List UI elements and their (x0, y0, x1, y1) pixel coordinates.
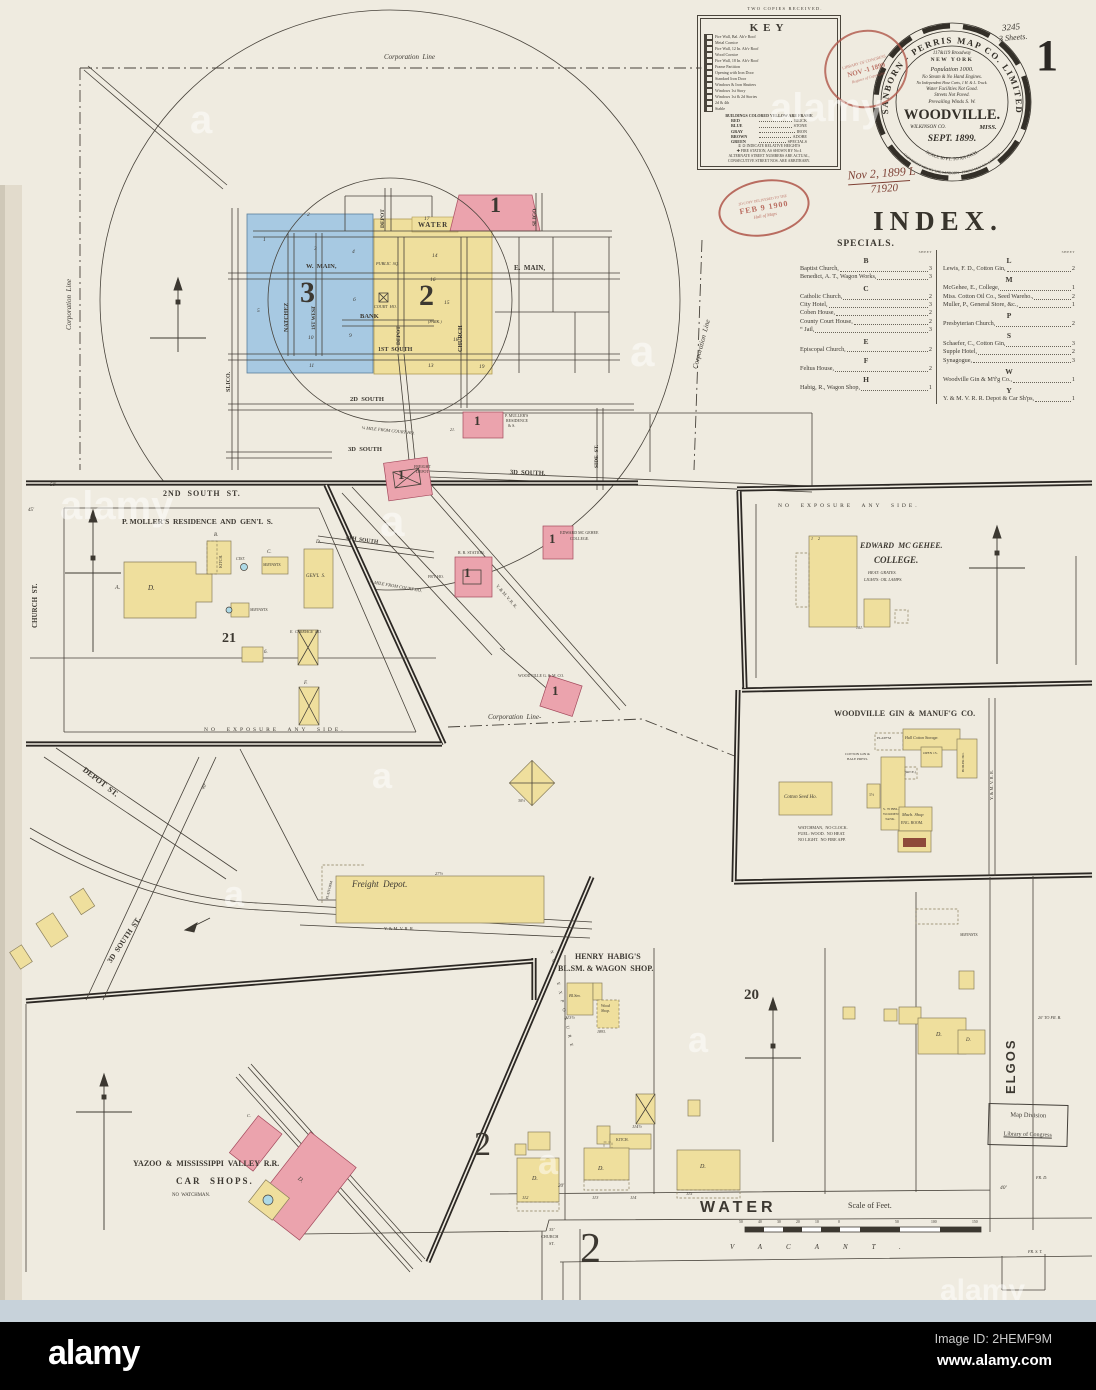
map-note: COLLEGE. (570, 537, 589, 541)
map-annotation-layer: Corporation LineCorporation LineCorporat… (0, 0, 1096, 1302)
seal-streets: Streets Not Paved. (934, 93, 969, 98)
lot-number: 113½ (565, 1016, 575, 1021)
block-number: 3 (300, 278, 315, 308)
building-label: CIST. (236, 557, 245, 561)
street-label: 3D SOUTH ST. (106, 916, 142, 964)
index-entry-cell: 2 (929, 293, 932, 301)
alamy-logo: alamy (48, 1334, 139, 1373)
image-id-label: Image ID: 2HEMF9M (935, 1332, 1052, 1346)
block-number: 10 (308, 336, 314, 342)
index-entry: Coben House,2 (800, 309, 932, 317)
building-label: E. CARRIAGE HO. (290, 631, 322, 635)
index-sheet-label: SHEET (943, 250, 1075, 254)
seal-town: WOODVILLE. (904, 107, 1000, 123)
block-number: 2 (419, 281, 434, 311)
index-entry-cell: Habig, R., Wagon Shop, (800, 384, 860, 392)
building-label: Mach. Shop (902, 813, 924, 818)
index-entry-cell (829, 301, 928, 308)
index-entry: Baptist Church,3 (800, 265, 932, 273)
index-entry-cell (978, 348, 1071, 355)
stamp-line: Map Division (989, 1111, 1067, 1120)
building-label: OPEN 1S. (923, 752, 938, 756)
index-entry-cell: 2 (929, 346, 932, 354)
inset-number: 1 (549, 532, 556, 545)
block-number: 13 (428, 364, 434, 370)
index-entry-cell: 3 (929, 265, 932, 273)
index-letter-header: M (943, 275, 1075, 284)
map-note: PUBLIC SQ. (376, 262, 399, 266)
index-entry-cell: Baptist Church, (800, 265, 839, 273)
block-number: 18 (453, 338, 459, 344)
scale-tick: 40 (758, 1221, 762, 1225)
building-label: SERVANTS. (960, 934, 978, 938)
index-entry-cell (973, 357, 1071, 364)
sheet-number: 1 (1036, 30, 1058, 81)
lot-number: 114 (630, 1196, 636, 1201)
photo-edge-strip (0, 1300, 1096, 1322)
index-entry-cell: Woodville Gin & M'f'g Co., (943, 376, 1012, 384)
key-title: KEY (704, 22, 834, 34)
index-entry-cell: 3 (1072, 340, 1075, 348)
map-note: 21. (450, 428, 455, 432)
key-item: Stable (704, 106, 834, 112)
block-number: 20 (744, 988, 759, 1003)
seal-state: MISS. (978, 124, 997, 131)
seal-address: 117&119 Broadway (933, 51, 972, 56)
index-entry-cell (835, 365, 928, 372)
index-entry-cell: 1 (1072, 284, 1075, 292)
index-entry: Episcopal Church,2 (800, 346, 932, 354)
index-entry-cell: City Hotel, (800, 301, 828, 309)
index-entry-cell (861, 384, 928, 391)
key-item-label: Windows & Iron Shutters (715, 82, 756, 88)
map-note: FR. D. (1036, 1176, 1047, 1180)
dimension: 40' (201, 783, 209, 791)
building-label: GEN'L S. (306, 575, 325, 580)
index-letter-header: L (943, 256, 1075, 265)
index-entry-cell: Episcopal Church, (800, 346, 846, 354)
index-letter-header: W (943, 367, 1075, 376)
map-note: NO EXPOSURE ANY SIDE. (778, 504, 920, 510)
building-label: WOODEN (883, 813, 899, 817)
key-item-label: Windows 1st & 2d Stories (715, 94, 757, 100)
block-number: 19 (479, 365, 485, 371)
street-label: DEPOT (381, 209, 387, 228)
scale-tick: 50 (895, 1221, 899, 1225)
index-entry-cell (843, 293, 928, 300)
building-label: B. (214, 533, 218, 538)
index-entry-cell (1035, 395, 1071, 402)
map-note: WATCHMAN, NO CLOCK. (798, 826, 848, 830)
corporation-line-label: Corporation Line (692, 319, 712, 370)
index-letter-header: E (800, 337, 932, 346)
index-letter-header: B (800, 256, 932, 265)
block-number: 1 (490, 194, 501, 216)
map-note: R. R. STATION. (458, 551, 485, 555)
dimension: 45' (28, 508, 34, 513)
block-number: 9 (349, 334, 352, 340)
section-title: HENRY HABIG'S (575, 953, 641, 961)
street-label: BANK (360, 314, 379, 321)
building-label: 6. (264, 650, 268, 655)
dimension: 50' (50, 483, 56, 488)
railroad-label: Y. & M. V. R. R. (495, 584, 518, 610)
block-number: 4 (352, 250, 355, 256)
index-entry-cell: 2 (929, 309, 932, 317)
index-columns: SHEETBBaptist Church,3Benedict, A. T., W… (800, 250, 1076, 404)
map-note: NO LIGHT. NO FIRE APP. (798, 838, 846, 842)
block-number: 17 (424, 217, 430, 223)
street-label: 1ST SOUTH (378, 347, 412, 353)
index-entry-cell: 3 (929, 326, 932, 334)
block-number: 16 (430, 278, 436, 284)
index-letter-header: Y (943, 386, 1075, 395)
index-entry: Supple Hotel,2 (943, 348, 1075, 356)
index-entry: City Hotel,3 (800, 301, 932, 309)
index-entry-cell (1000, 284, 1071, 291)
index-entry-cell: 2 (1072, 348, 1075, 356)
street-label: CHURCH ST. (32, 584, 39, 628)
index-entry: Habig, R., Wagon Shop,1 (800, 384, 932, 392)
index-column-right: SHEETLLewis, F. D., Cotton Gin,2MMcGehee… (936, 250, 1075, 404)
map-note: HEAT: GRATES. (868, 571, 897, 575)
key-color-cell (759, 139, 786, 143)
building-label: Freight Depot. (352, 880, 407, 889)
railroad-label: Y. & M. V. R. R. (384, 927, 414, 932)
dimension: 27½ (435, 872, 443, 877)
building-label: 1 (811, 537, 813, 541)
index-entry: Miss. Cotton Oil Co., Seed Wareho.,2 (943, 293, 1075, 301)
building-label: F. (304, 681, 308, 686)
map-note: (PARK.) (428, 320, 442, 324)
seal-winds: Prevailing Winds S. W. (927, 99, 975, 105)
map-note: FUEL: WOOD. NO HEAT. (798, 832, 845, 836)
scale-tick: 150 (972, 1221, 978, 1225)
block-number: 6 (353, 298, 356, 304)
index-entry: Y. & M. V. R. R. Depot & Car Sh'ps,1 (943, 395, 1075, 403)
index-entry-cell (840, 265, 928, 272)
block-number: 21 (222, 632, 236, 646)
index-entry-cell: 2 (1072, 320, 1075, 328)
key-color-cell (759, 123, 792, 127)
index-title: INDEX. (800, 206, 1076, 237)
index-entry-cell: Catholic Church, (800, 293, 842, 301)
building-label: Bl.Sm. (569, 994, 581, 999)
scale-tick: 0 (838, 1221, 840, 1225)
street-label: CHURCH (541, 1235, 558, 1239)
building-label: ENG. ROOM. (901, 822, 923, 826)
block-number: 5 (257, 309, 260, 315)
key-color-cell (759, 134, 791, 138)
street-label: 2D SOUTH (350, 397, 384, 404)
index-entry-cell: 1 (929, 384, 932, 392)
map-note: FR'T HO. (428, 575, 444, 579)
index-entry-cell (1007, 265, 1071, 272)
index-entry-cell (1034, 293, 1070, 300)
index-entry: “ Jail,3 (800, 326, 932, 334)
map-note: WOODVILLE G. & M. CO. (518, 674, 564, 678)
key-note: CONSECUTIVE STREET NOS. ARE ARBITRARY. (704, 159, 834, 164)
inset-number: 1 (474, 414, 481, 427)
lot-number: 113 (592, 1196, 598, 1201)
key-color-cell (759, 129, 795, 133)
block-number: 1 (263, 238, 266, 244)
seal-hose: No Independent Hose Carts, 1 H. & L. Tru… (916, 81, 988, 86)
block-number: 3 (314, 247, 317, 253)
building-label: PLATF'M (877, 737, 891, 741)
street-label: WATER (418, 222, 448, 229)
dimension: 30½ (518, 799, 525, 803)
index-entry-cell (854, 318, 928, 325)
seal-date: SEPT. 1899. (928, 134, 976, 144)
seal-water: Water Facilities Not Good. (926, 87, 978, 92)
street-label: 2ND SOUTH ST. (163, 490, 241, 498)
index-entry-cell: Supple Hotel, (943, 348, 977, 356)
corporation-line-label: Corporation Line (384, 54, 435, 61)
index-entry: Feltus House,2 (800, 365, 932, 373)
scale-tick: 20 (796, 1221, 800, 1225)
index-entry: Schaefer, C., Cotton Gin,3 (943, 340, 1075, 348)
key-item-label: Standard Iron Door (715, 76, 746, 82)
building-label: Hull Cotton Storage. (905, 736, 938, 740)
street-label: 4TH SOUTH (345, 536, 378, 546)
alamy-url: www.alamy.com (935, 1352, 1052, 1369)
scale-tick: 10 (815, 1221, 819, 1225)
corporation-line-label: Corporation Line- (488, 714, 541, 721)
section-title: YAZOO & MISSISSIPPI VALLEY R.R. (133, 1160, 279, 1168)
map-note: & S. (508, 424, 515, 428)
map-note: FR. S. T. (1028, 1250, 1042, 1254)
index-entry-cell (1013, 376, 1071, 383)
index-entry-cell: 2 (929, 318, 932, 326)
key-notes: ① ② INDICATE RELATIVE HEIGHTS✚ FIRE STAT… (704, 144, 834, 164)
block-number: 2 (580, 1228, 601, 1270)
index-entry-cell: Lewis, F. D., Cotton Gin, (943, 265, 1006, 273)
key-item-label: Wood Cornice (715, 52, 738, 58)
seal-population: Population 1000. (930, 66, 974, 73)
section-title: COLLEGE. (874, 556, 918, 565)
map-note: EDWARD MC GEHEE (560, 531, 598, 535)
key-item-label: Opening with Iron Door (715, 70, 754, 76)
key-color-cell (759, 118, 792, 122)
index-entry-cell (847, 346, 928, 353)
index-entry: Muller, P., General Store, &c.,1 (943, 301, 1075, 309)
index-entry-cell (996, 320, 1071, 327)
index-entry: County Court House,2 (800, 318, 932, 326)
key-item-label: Windows 1st Story (715, 88, 746, 94)
scale-title: Scale of Feet. (848, 1202, 892, 1210)
scale-tick: 100 (931, 1221, 937, 1225)
building-label: D. (966, 1038, 971, 1043)
inset-number: 1 (464, 566, 471, 579)
building-label: COTTON GIN & (845, 753, 870, 757)
index-entry: McGehee, E., College,1 (943, 284, 1075, 292)
lot-number: 112 (522, 1196, 528, 1201)
key-item-label: 2d & 4th (715, 100, 729, 106)
index-entry-cell: 1 (1072, 376, 1075, 384)
building-label: C. (267, 550, 272, 555)
building-label: D. (700, 1164, 706, 1170)
seal-scale: SCALE 50 FT. TO AN INCH. (925, 149, 979, 161)
block-number: 14 (432, 254, 438, 260)
building-label: SERVANTS. (263, 564, 281, 568)
building-label: D. (532, 1176, 538, 1182)
building-label: D. (296, 1176, 304, 1184)
received-note: TWO COPIES RECEIVED. (710, 6, 860, 11)
index-entry-cell: 1 (1072, 395, 1075, 403)
street-label: DEPOT (397, 326, 403, 345)
building-label: 101. (856, 626, 863, 630)
building-label: Cotton Seed Ho. (784, 795, 817, 800)
street-label: 3D SOUTH (348, 447, 382, 454)
index-entry-cell: 2 (929, 365, 932, 373)
railroad-label: Y. & M. V. R. R. (990, 770, 995, 800)
building-label: C. (247, 1114, 251, 1119)
building-label: PLATFORM (326, 881, 334, 900)
index-entry-cell (877, 273, 928, 280)
corporation-line-label: Corporation Line (66, 279, 73, 330)
street-label: 3D SOUTH. (510, 470, 546, 478)
building-label: 2 (818, 537, 820, 541)
building-label: Shop. (601, 1009, 610, 1013)
key-item-label: Fire Wall, Bal. Ab'v Roof (715, 34, 756, 40)
inset-number: 1 (552, 684, 559, 697)
index-entry-cell: McGehee, E., College, (943, 284, 999, 292)
index-entry-cell: 2 (1072, 265, 1075, 273)
map-note: 20' TO FR. B. (1038, 1016, 1061, 1020)
building-label: TANK. (885, 818, 895, 822)
block-number: 2 (474, 1128, 491, 1162)
building-label: KITCH. (219, 555, 223, 568)
key-item-label: Fire Wall, 12 In. Ab'v Roof (715, 46, 759, 52)
building-label: D. (316, 540, 321, 545)
stamp-line: Library of Congress (989, 1131, 1067, 1139)
inset-number: 1 (398, 468, 405, 481)
map-note: NO EXPOSURE ANY SIDE. (204, 728, 346, 734)
street-label: ST. (549, 1242, 555, 1246)
street-label: W. MAIN, (306, 264, 336, 271)
building-label: (RICE.) (905, 771, 916, 775)
index-entry-cell: Synagogue, (943, 357, 972, 365)
index-entry-cell: 3 (929, 301, 932, 309)
key-symbol-icon (704, 106, 713, 112)
index-letter-header: F (800, 356, 932, 365)
index-entry-cell (836, 309, 928, 316)
key-item-label: Fire Wall, 18 In. Ab'v Roof (715, 58, 759, 64)
map-note: LIGHTS: OIL LAMPS. (864, 578, 902, 582)
scale-tick: 30 (777, 1221, 781, 1225)
index-entry: Synagogue,3 (943, 357, 1075, 365)
street-label: SIDE ST. (595, 445, 601, 468)
street-label: ELGOS (1004, 1038, 1017, 1094)
seal-city: NEW YORK (931, 57, 974, 63)
map-note: VACANT. (730, 1244, 925, 1251)
index-letter-header: S (943, 331, 1075, 340)
street-label: E. MAIN, (514, 265, 545, 272)
index-entry-cell (1019, 301, 1071, 308)
index-entry: Catholic Church,2 (800, 293, 932, 301)
map-note: NO WATCHMAN. (172, 1194, 210, 1199)
index-entry-cell (1006, 340, 1070, 347)
building-label: D. (936, 1032, 942, 1038)
sanborn-map-sheet: Corporation LineCorporation LineCorporat… (0, 0, 1096, 1390)
index-entry: Presbyterian Church,2 (943, 320, 1075, 328)
building-label: BOILER HO. (962, 753, 966, 772)
section-title: WOODVILLE GIN & MANUF'G CO. (834, 710, 975, 718)
index-entry-cell: 3 (929, 273, 932, 281)
index-entry: Woodville Gin & M'f'g Co.,1 (943, 376, 1075, 384)
map-division-stamp: Map Division Library of Congress (987, 1103, 1068, 1147)
building-label: 1½ (869, 793, 874, 797)
index-entry-cell: “ Jail, (800, 326, 814, 334)
index-entry: Benedict, A. T., Wagon Works,3 (800, 273, 932, 281)
index-sheet-label: SHEET (800, 250, 932, 254)
alamy-footer-bar: alamy Image ID: 2HEMF9M www.alamy.com (0, 1322, 1096, 1390)
key-item-label: Metal Cornice (715, 40, 738, 46)
section-title: EDWARD MC GEHEE. (860, 542, 943, 550)
index-column-left: SHEETBBaptist Church,3Benedict, A. T., W… (800, 250, 936, 404)
index-entry-cell: Muller, P., General Store, &c., (943, 301, 1018, 309)
index-entry-cell: Miss. Cotton Oil Co., Seed Wareho., (943, 293, 1033, 301)
index-entry-cell: Schaefer, C., Cotton Gin, (943, 340, 1005, 348)
key-legend: KEY Fire Wall, Bal. Ab'v RoofMetal Corni… (700, 18, 838, 167)
lot-number: 114½ (632, 1125, 642, 1130)
block-number: 11 (309, 364, 314, 370)
section-title: BL.SM. & WAGON SHOP. (558, 965, 653, 973)
seal-engines: No Steam & No Hand Engines. (921, 75, 982, 80)
block-number: 7 (312, 309, 315, 315)
key-items: Fire Wall, Bal. Ab'v RoofMetal CorniceFi… (704, 34, 834, 112)
street-label: SLICO. (226, 372, 232, 392)
building-label: A. (115, 585, 120, 591)
street-label: SLIGO (533, 209, 539, 226)
lot-number: 115 (686, 1192, 692, 1197)
seal-county: WILKINSON CO. (910, 125, 946, 130)
index-letter-header: C (800, 284, 932, 293)
index-entry-cell: Y. & M. V. R. R. Depot & Car Sh'ps, (943, 395, 1034, 403)
building-label: D. (148, 585, 155, 592)
building-label: S. 70 BBL. (883, 808, 899, 812)
building-label: KITCH. (616, 1139, 629, 1143)
lot-number: 1893. (597, 1030, 606, 1034)
street-label: DEPOT ST. (81, 766, 120, 799)
index-entry-cell: Coben House, (800, 309, 835, 317)
dimension: 35' (549, 1228, 554, 1233)
index-entry-cell: 3 (1072, 357, 1075, 365)
index-entry-cell: Benedict, A. T., Wagon Works, (800, 273, 876, 281)
handwritten-note: Nov 2, 1899 L 71920 (847, 164, 917, 198)
street-label: WATER (700, 1200, 777, 1216)
radius-label: ¼ MILE FROM COURT HO. (362, 426, 415, 436)
building-label: D. (598, 1166, 604, 1172)
key-item-label: Stable (715, 106, 725, 112)
street-label: NATCHEZ (284, 303, 290, 332)
index-entry-cell: 1 (1072, 301, 1075, 309)
index-entry: Lewis, F. D., Cotton Gin,2 (943, 265, 1075, 273)
section-title: P. MOLLER'S RESIDENCE AND GEN'L S. (122, 518, 273, 526)
block-number: 15 (444, 301, 450, 307)
index-entry-cell (815, 326, 927, 333)
block-number: 2 (307, 213, 310, 219)
building-label: BALE PRESS. (847, 758, 868, 762)
key-color-legend: REDBRICKBLUESTONEGRAYIRONBROWNADOBEGREEN… (704, 118, 834, 144)
dimension: 40' (1000, 1186, 1007, 1192)
key-item-label: Frame Partition (715, 64, 740, 70)
index-entry-cell: County Court House, (800, 318, 853, 326)
index-entry-cell: Feltus House, (800, 365, 834, 373)
index-letter-header: H (800, 375, 932, 384)
scale-tick: 50 (739, 1221, 743, 1225)
